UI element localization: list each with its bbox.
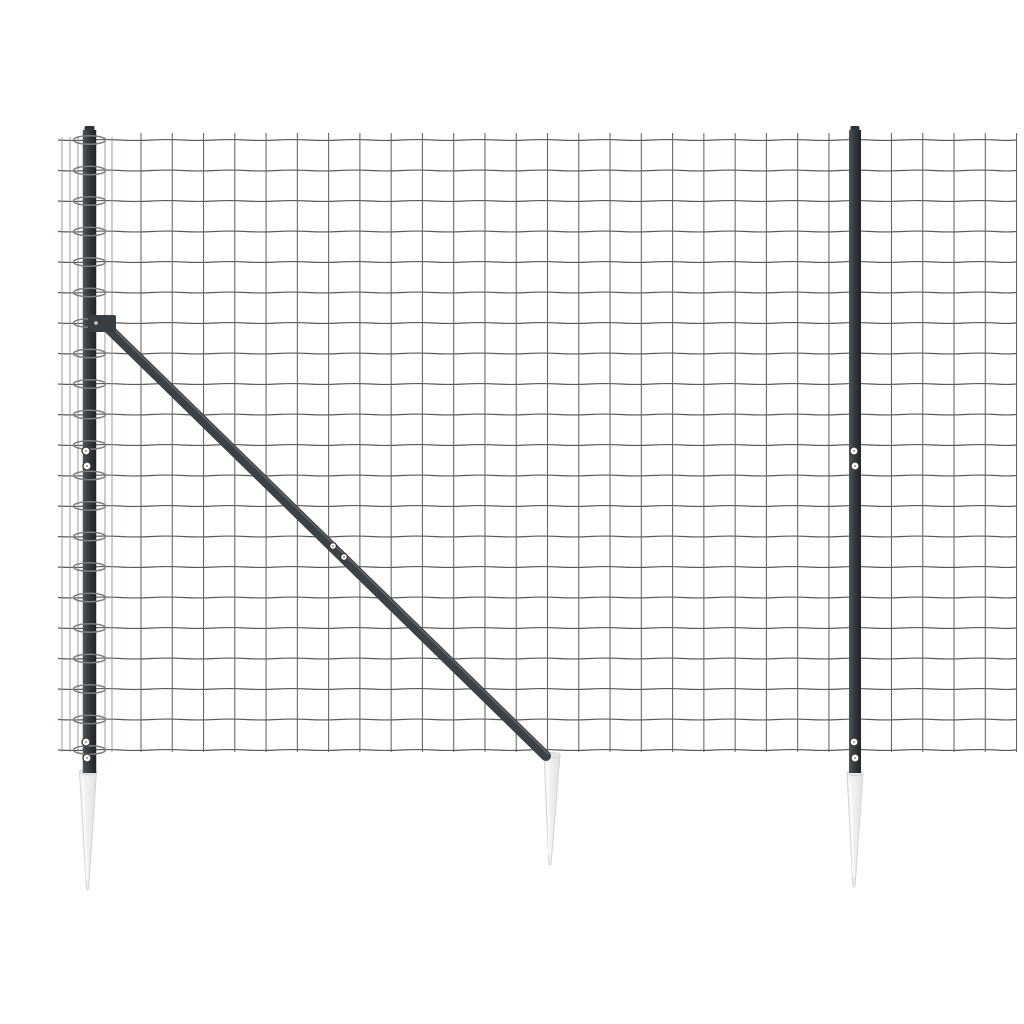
right-fence-post [849, 126, 861, 773]
screw-center [853, 741, 855, 743]
screw-head [82, 447, 90, 455]
screw-head [850, 447, 858, 455]
white-background [0, 0, 1024, 1024]
screw-head [341, 554, 348, 561]
brace-clamp [88, 315, 116, 332]
screw-center [86, 757, 88, 759]
screw-head [850, 738, 858, 746]
screw-center [86, 465, 88, 467]
clamp-bolt [94, 321, 98, 325]
fence-illustration [0, 0, 1024, 1024]
screw-head [851, 462, 859, 470]
screw-head [330, 543, 337, 550]
screw-head [83, 462, 91, 470]
screw-center [343, 556, 345, 558]
screw-center [332, 545, 334, 547]
product-photo-canvas [0, 0, 1024, 1024]
screw-center [854, 757, 856, 759]
screw-center [85, 741, 87, 743]
screw-center [854, 465, 856, 467]
screw-head [851, 754, 859, 762]
screw-center [853, 450, 855, 452]
screw-center [85, 450, 87, 452]
screw-head [82, 738, 90, 746]
screw-head [83, 754, 91, 762]
